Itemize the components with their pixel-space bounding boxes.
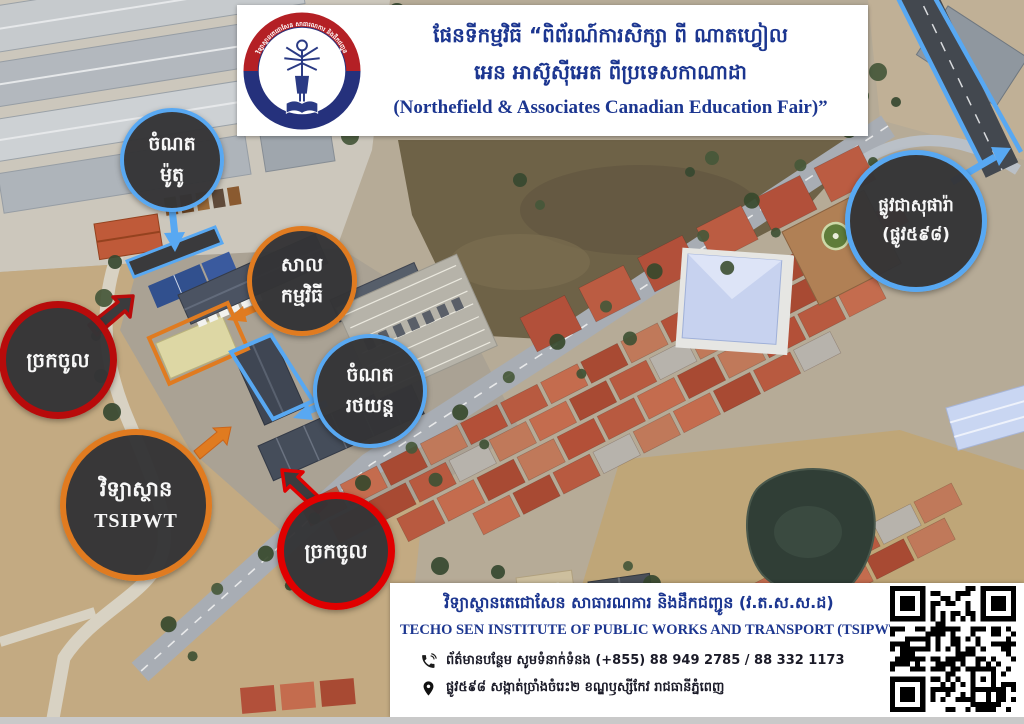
- phone-text: ព័ត៌មានបន្ថែម សូមទំនាក់ទំនង (+855) 88 94…: [446, 652, 845, 671]
- institute-logo: វិទ្យាស្ថានតេជោសែន សាធារណការ និងដឹកជញ្ជូ…: [243, 12, 361, 130]
- callout-car-parking: ចំណត រថយន្ត: [313, 334, 427, 448]
- callout-label: ច្រកចូល: [26, 349, 89, 372]
- callout-label: កម្មវិធី: [281, 286, 323, 308]
- callout-label: TSIPWT: [94, 510, 178, 533]
- event-map-flyer: វិទ្យាស្ថានតេជោសែន សាធារណការ និងដឹកជញ្ជូ…: [0, 0, 1024, 724]
- callout-entrance-west: ច្រកចូល: [0, 301, 117, 419]
- callout-label: ចំណត: [148, 134, 195, 156]
- street-598-highlight-right: [934, 0, 1021, 152]
- street-598-highlight-left: [897, 0, 981, 163]
- callout-label: ម៉ូតូ: [160, 165, 184, 187]
- institute-name-english: TECHO SEN INSTITUTE OF PUBLIC WORKS AND …: [400, 622, 878, 639]
- phone-icon: [420, 653, 437, 670]
- callout-label: រថយន្ត: [346, 396, 394, 418]
- callout-label: សាល: [281, 255, 323, 277]
- institute-arrow: [194, 427, 231, 459]
- title-english: (Northefield & Associates Canadian Educa…: [361, 97, 860, 119]
- institute-name-khmer: វិទ្យាស្ថានតេជោសែន សាធារណការ និងដឹកជញ្ជូ…: [400, 592, 878, 616]
- callout-label: វិទ្យាស្ថាន: [100, 477, 173, 501]
- callout-label: ច្រកចូល: [304, 540, 367, 563]
- phone-row: ព័ត៌មានបន្ថែម សូមទំនាក់ទំនង (+855) 88 94…: [420, 652, 878, 671]
- callout-label: ចំណត: [346, 365, 393, 387]
- callout-label: ផ្លូវជាសុផារ៉ា: [878, 197, 954, 217]
- callout-event-hall: សាល កម្មវិធី: [247, 226, 357, 336]
- callout-institute-tsipwt: វិទ្យាស្ថាន TSIPWT: [60, 429, 212, 581]
- callout-moto-parking: ចំណត ម៉ូតូ: [120, 108, 224, 212]
- qr-code: [890, 586, 1016, 712]
- location-pin-icon: [420, 680, 437, 697]
- callout-label: (ផ្លូវ៥៩៨): [882, 226, 950, 246]
- car-parking-highlight: [231, 335, 313, 419]
- callout-street-598: ផ្លូវជាសុផារ៉ា (ផ្លូវ៥៩៨): [845, 150, 987, 292]
- title-khmer-line2: អេន អាស៊ូស៊ីអេត ពីប្រទេសកាណាដា: [361, 59, 860, 89]
- bottom-border-strip: [0, 717, 1024, 724]
- title-khmer-line1: ផែនទីកម្មវិធី “ពិព័រណ៍ការសិក្សា ពី ណាតហ្…: [361, 22, 860, 52]
- address-text: ផ្លូវ៥៩៨ សង្កាត់ច្រាំងចំរេះ២ ខណ្ឌឫស្សីកែ…: [446, 679, 724, 698]
- address-row: ផ្លូវ៥៩៨ សង្កាត់ច្រាំងចំរេះ២ ខណ្ឌឫស្សីកែ…: [420, 679, 878, 698]
- title-banner: វិទ្យាស្ថានតេជោសែន សាធារណការ និងដឹកជញ្ជូ…: [237, 5, 868, 136]
- event-title: ផែនទីកម្មវិធី “ពិព័រណ៍ការសិក្សា ពី ណាតហ្…: [361, 22, 860, 119]
- callout-entrance-south: ច្រកចូល: [277, 492, 395, 610]
